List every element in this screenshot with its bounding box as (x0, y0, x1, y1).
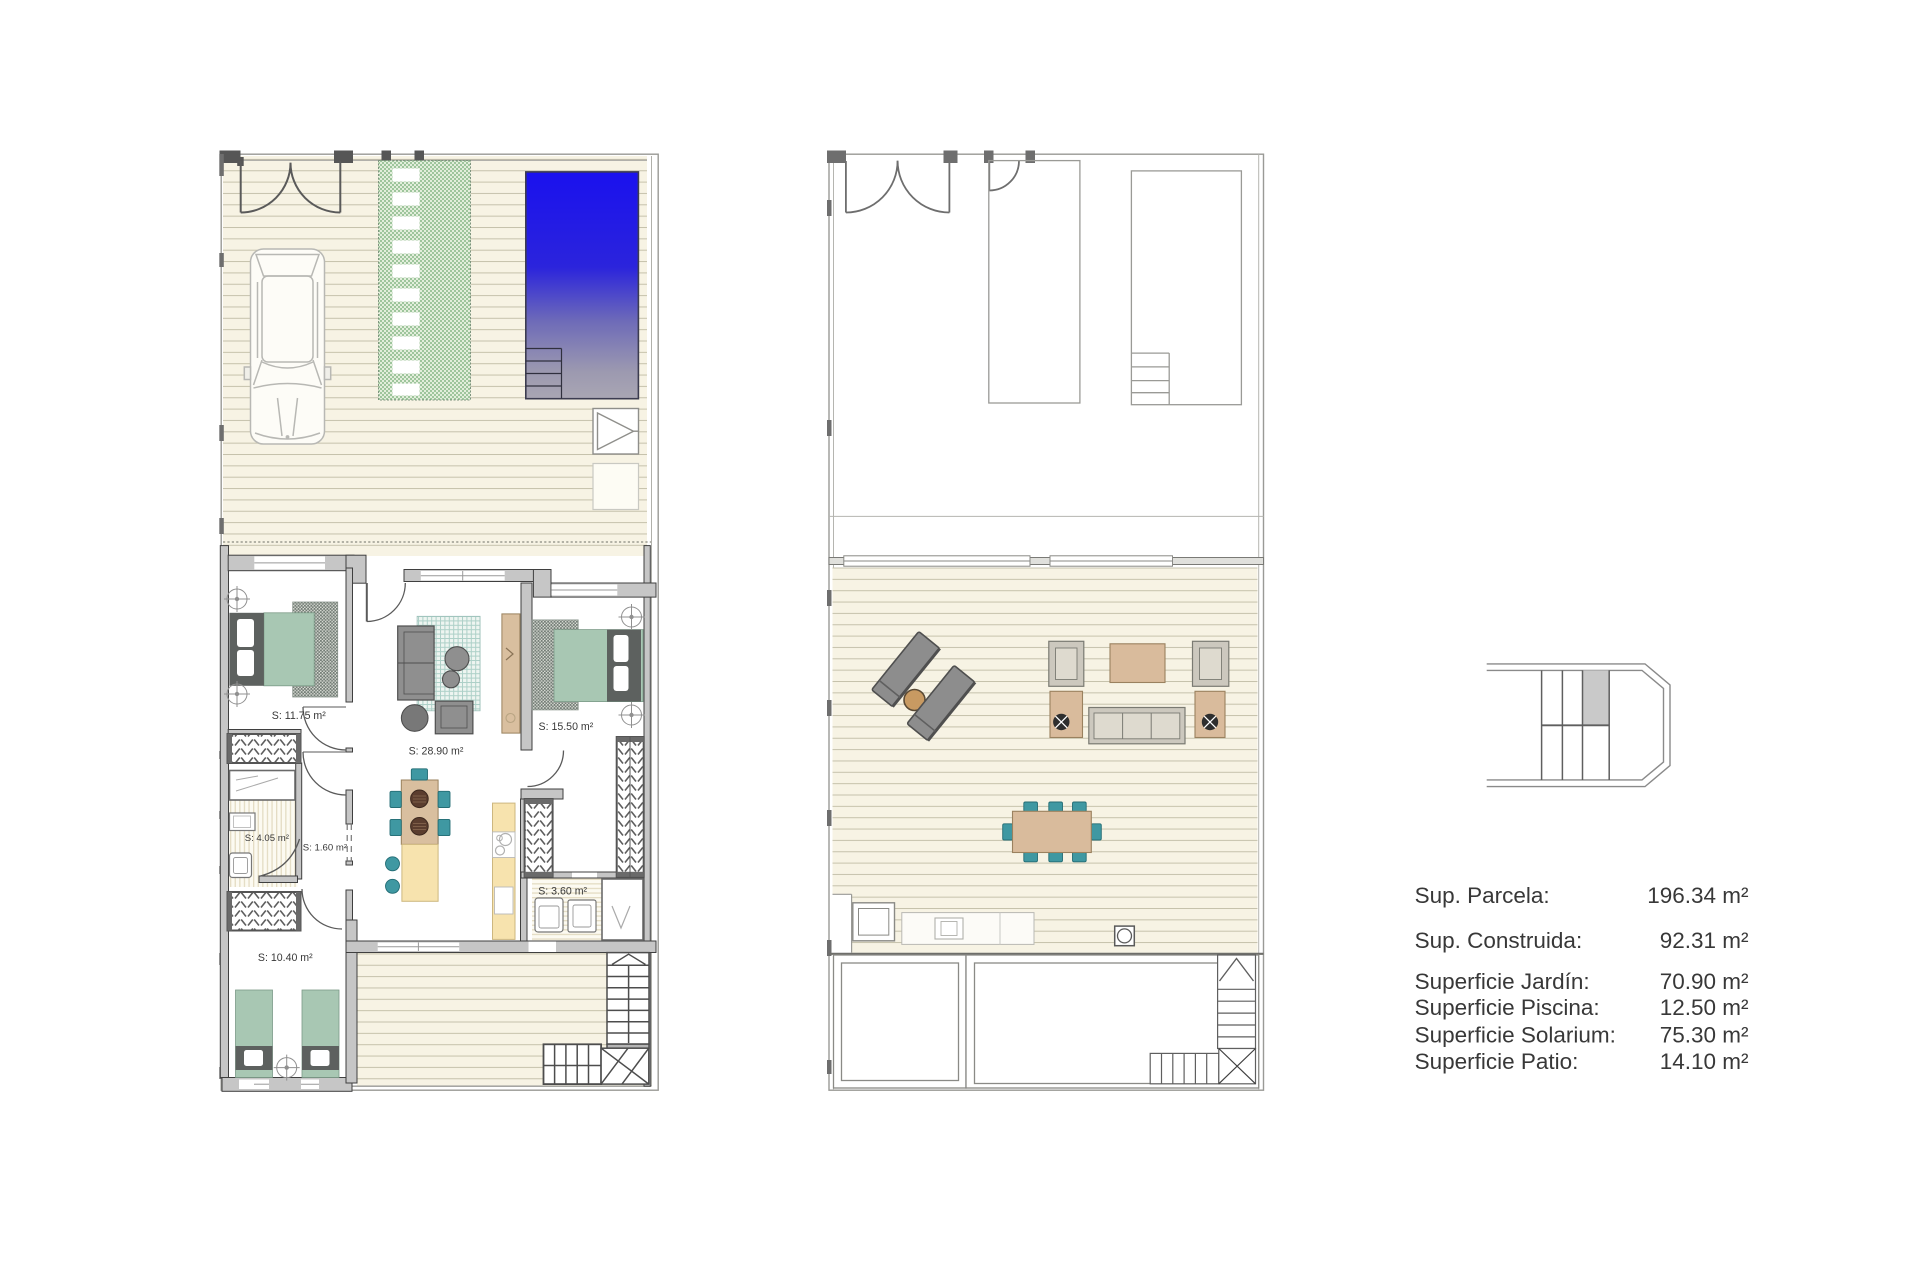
svg-text:S: 15.50 m²: S: 15.50 m² (539, 721, 594, 733)
svg-text:Sup. Construida:: Sup. Construida: (1415, 928, 1583, 953)
svg-text:S: 1.60 m²: S: 1.60 m² (303, 843, 348, 854)
svg-text:S: 10.40 m²: S: 10.40 m² (258, 952, 313, 964)
svg-text:S: 4.05 m²: S: 4.05 m² (245, 833, 290, 844)
svg-text:14.10 m²: 14.10 m² (1660, 1049, 1749, 1074)
svg-text:12.50 m²: 12.50 m² (1660, 995, 1749, 1020)
svg-text:Superficie Patio:: Superficie Patio: (1415, 1049, 1579, 1074)
svg-text:Superficie Jardín:: Superficie Jardín: (1415, 969, 1590, 994)
svg-text:70.90 m²: 70.90 m² (1660, 969, 1749, 994)
svg-text:Superficie Solarium:: Superficie Solarium: (1415, 1022, 1616, 1047)
svg-text:S: 11.75 m²: S: 11.75 m² (272, 710, 326, 722)
svg-text:Sup. Parcela:: Sup. Parcela: (1415, 883, 1550, 908)
svg-text:Superficie Piscina:: Superficie Piscina: (1415, 995, 1600, 1020)
svg-text:196.34 m²: 196.34 m² (1647, 883, 1749, 908)
svg-text:S: 28.90 m²: S: 28.90 m² (409, 746, 464, 758)
svg-text:75.30 m²: 75.30 m² (1660, 1022, 1749, 1047)
svg-text:S: 3.60 m²: S: 3.60 m² (538, 886, 587, 898)
svg-text:92.31 m²: 92.31 m² (1660, 928, 1749, 953)
